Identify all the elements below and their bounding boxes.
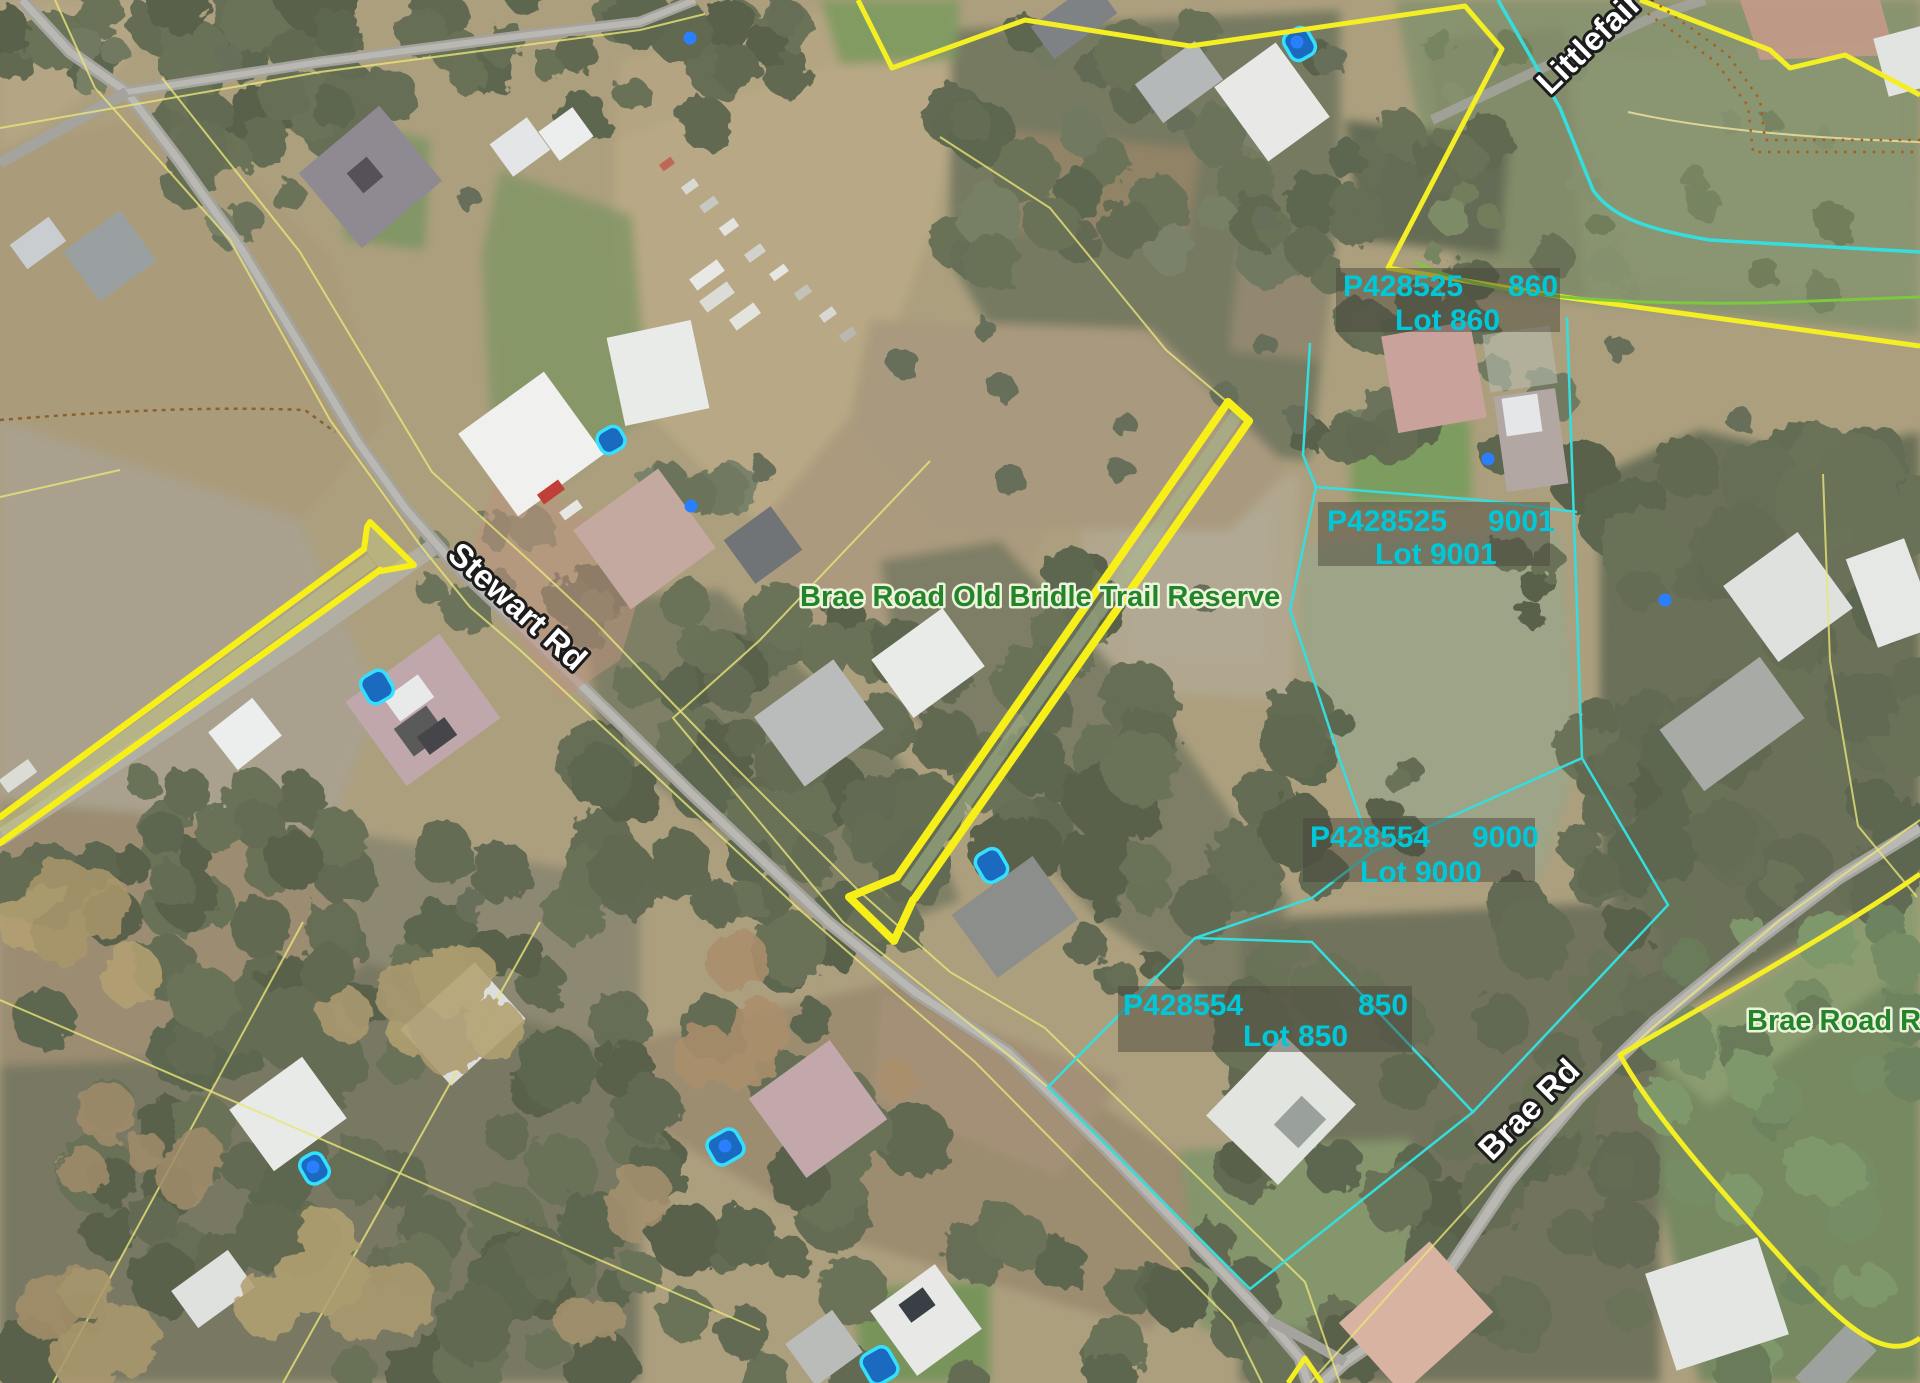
svg-text:P428525: P428525	[1343, 270, 1463, 303]
svg-text:9000: 9000	[1472, 821, 1539, 854]
svg-text:Lot 850: Lot 850	[1243, 1020, 1348, 1053]
svg-text:P428525: P428525	[1327, 505, 1447, 538]
svg-text:Lot 9001: Lot 9001	[1375, 538, 1497, 571]
svg-text:9001: 9001	[1488, 505, 1555, 538]
svg-text:Brae Road Reserve: Brae Road Reserve	[1747, 1005, 1920, 1037]
svg-text:P428554: P428554	[1310, 821, 1430, 854]
svg-text:860: 860	[1508, 270, 1558, 303]
svg-text:Brae Road Old Bridle Trail Res: Brae Road Old Bridle Trail Reserve	[800, 581, 1280, 613]
svg-text:P428554: P428554	[1123, 989, 1243, 1022]
svg-text:Lot 9000: Lot 9000	[1360, 856, 1482, 889]
svg-text:850: 850	[1358, 989, 1408, 1022]
svg-text:Lot 860: Lot 860	[1395, 304, 1500, 337]
